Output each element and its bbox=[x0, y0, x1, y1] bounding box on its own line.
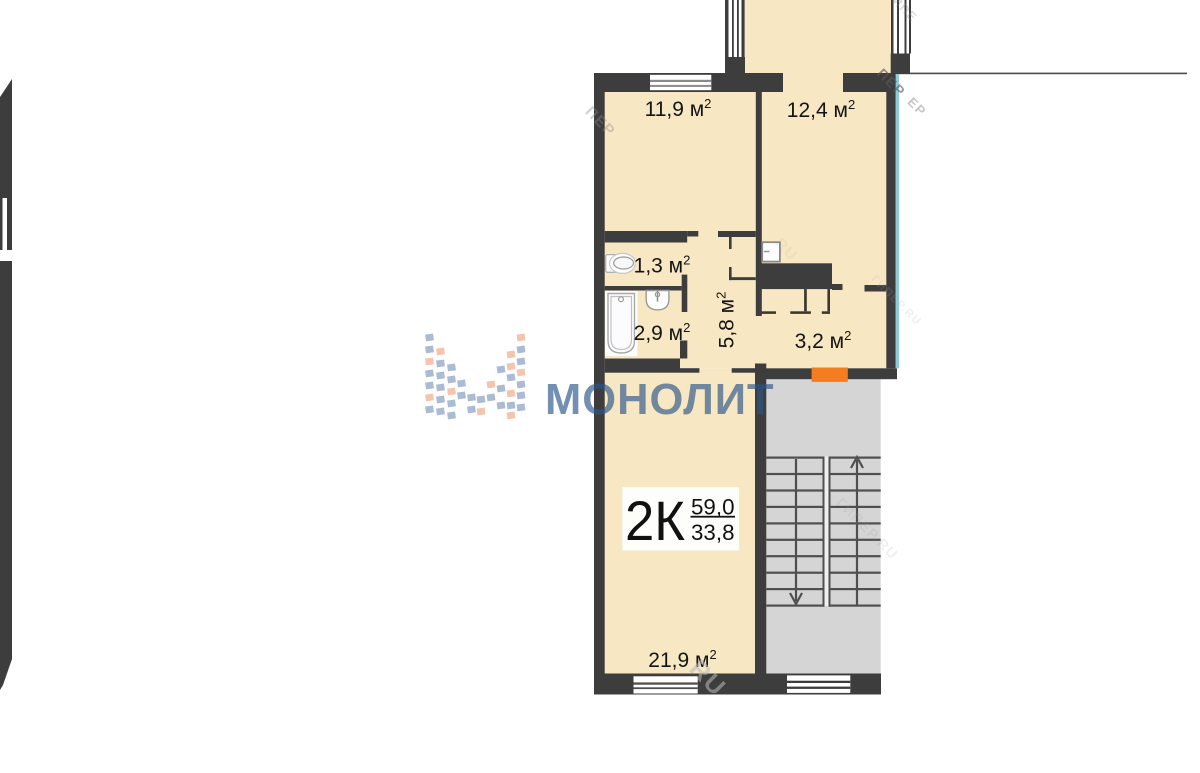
svg-text:МОНОЛИТ: МОНОЛИТ bbox=[545, 376, 775, 424]
svg-text:5,8 м2: 5,8 м2 bbox=[714, 292, 739, 349]
svg-text:12,4 м2: 12,4 м2 bbox=[787, 97, 855, 122]
svg-text:59,0: 59,0 bbox=[691, 495, 735, 520]
svg-text:33,8: 33,8 bbox=[691, 520, 735, 545]
svg-text:2,9 м2: 2,9 м2 bbox=[634, 320, 691, 345]
svg-text:1,3 м2: 1,3 м2 bbox=[634, 253, 691, 278]
svg-text:11,9 м2: 11,9 м2 bbox=[645, 96, 712, 121]
svg-text:2К: 2К bbox=[625, 489, 685, 552]
svg-text:3,2 м2: 3,2 м2 bbox=[795, 328, 852, 353]
